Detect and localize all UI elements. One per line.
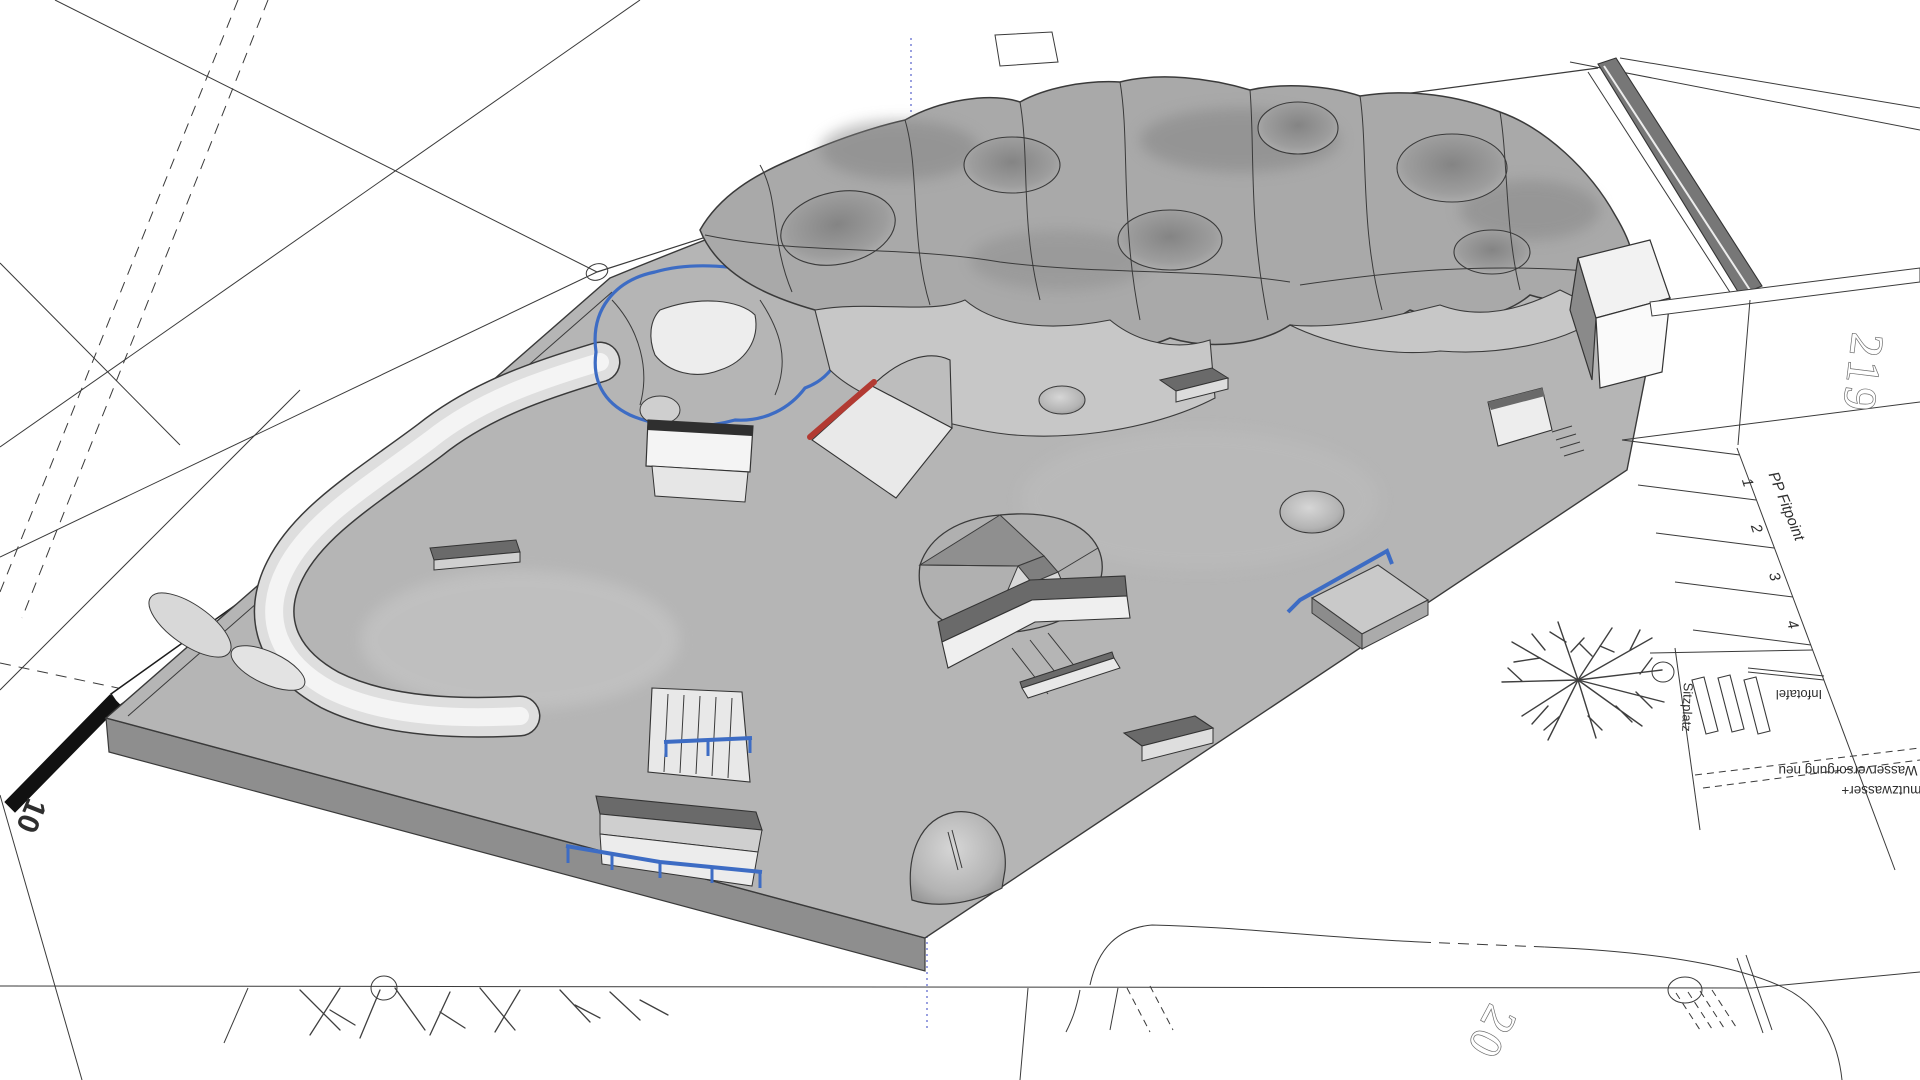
pool-grind-box	[646, 420, 753, 502]
bench-symbols	[1692, 675, 1770, 734]
road-edge-curve	[1090, 925, 1420, 985]
parcel-number-partial: 20	[1456, 997, 1526, 1069]
utility-lines: Wasserversorgung neu Schmutzwasser+	[1695, 748, 1920, 798]
utility-label-water: Wasserversorgung neu	[1778, 763, 1917, 778]
seating-area: Sitzplatz Infotafel	[1650, 648, 1824, 830]
utility-label-sewage: Schmutzwasser+	[1841, 783, 1920, 798]
seating-label: Sitzplatz	[1679, 682, 1696, 732]
site-plan-drawing: 5 10	[0, 0, 1920, 1080]
info-board-symbol	[1748, 668, 1824, 680]
stall-number-1: 1	[1738, 476, 1757, 489]
parking-label: PP Fitpoint	[1765, 469, 1808, 544]
hedge-symbol	[300, 988, 668, 1038]
stall-number-4: 4	[1783, 618, 1802, 631]
drawing-canvas: 5 10	[0, 0, 1920, 1080]
info-label: Infotafel	[1776, 687, 1822, 702]
stall-number-3: 3	[1765, 570, 1784, 584]
parcel-number: 219	[1833, 331, 1893, 418]
stall-number-2: 2	[1747, 521, 1766, 536]
building-outline	[995, 32, 1058, 66]
tree-symbol	[1502, 622, 1664, 740]
dome-bump	[1280, 491, 1344, 533]
footpath-band	[1650, 268, 1920, 316]
